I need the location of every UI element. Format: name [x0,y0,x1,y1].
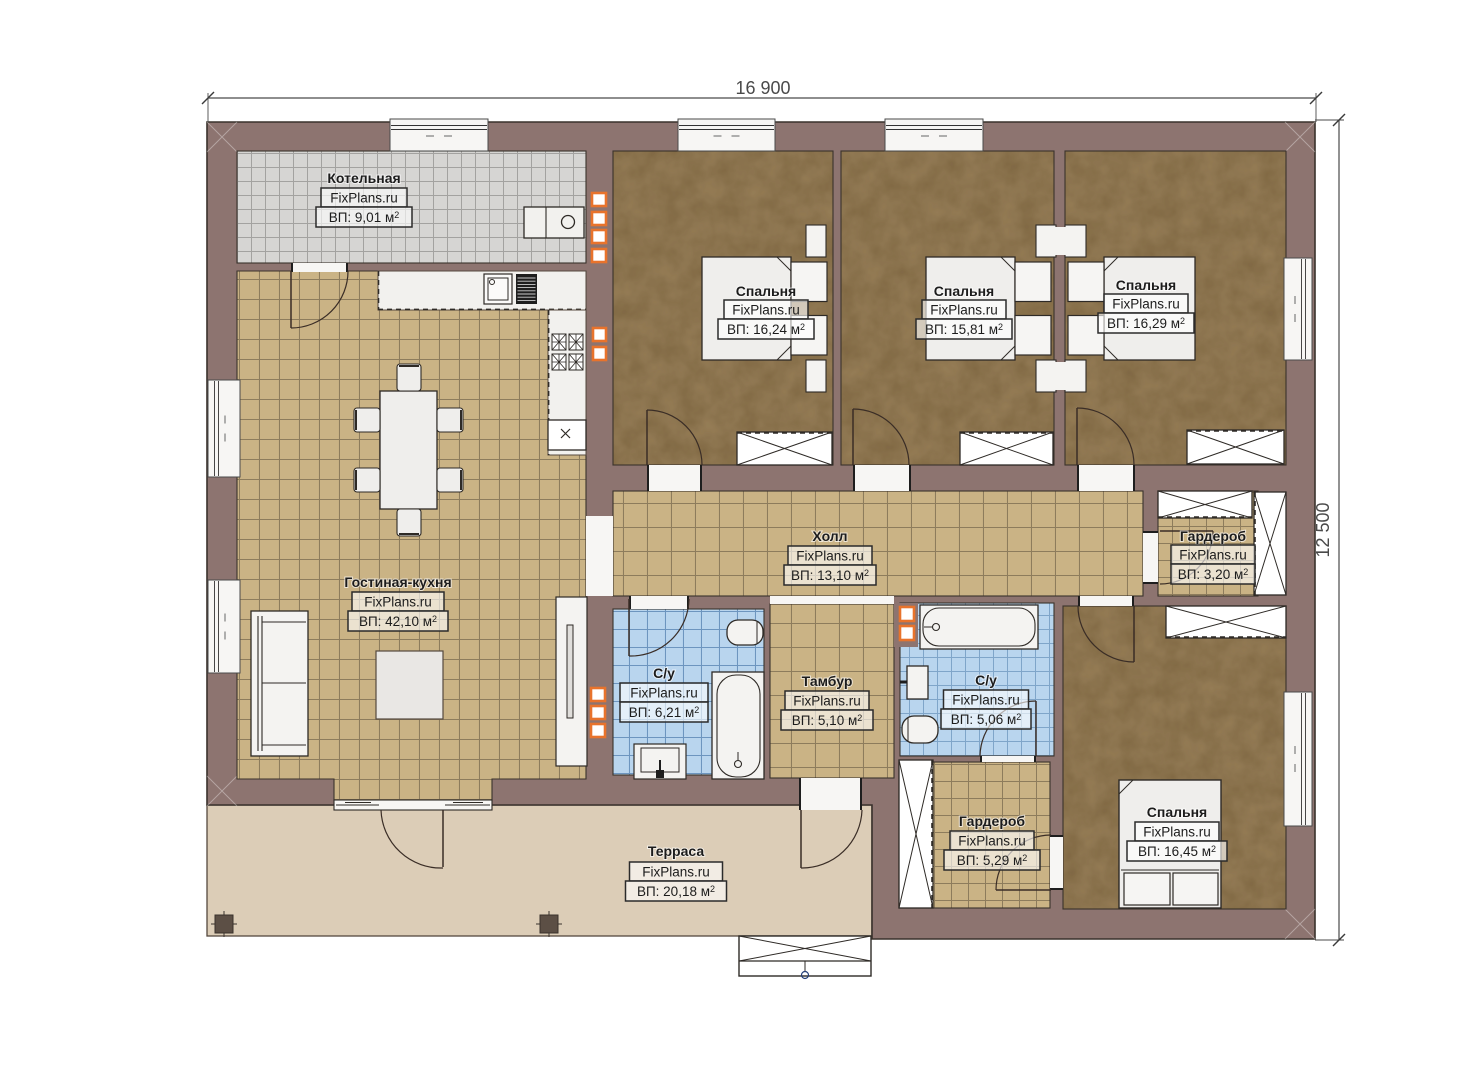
svg-text:С/у: С/у [653,665,675,681]
svg-text:Гостиная-кухня: Гостиная-кухня [344,574,451,590]
svg-text:ВП: 20,18 м2: ВП: 20,18 м2 [637,884,715,899]
svg-text:Котельная: Котельная [327,170,400,186]
svg-text:Тамбур: Тамбур [802,673,853,689]
svg-text:FixPlans.ru: FixPlans.ru [642,865,710,880]
svg-text:ВП: 5,10 м2: ВП: 5,10 м2 [792,713,863,728]
svg-text:С/у: С/у [975,672,997,688]
svg-text:ВП: 42,10 м2: ВП: 42,10 м2 [359,614,437,629]
svg-text:ВП: 16,45 м2: ВП: 16,45 м2 [1138,844,1216,859]
svg-text:Холл: Холл [812,528,847,544]
svg-text:FixPlans.ru: FixPlans.ru [958,834,1026,849]
svg-text:ВП: 15,81 м2: ВП: 15,81 м2 [925,322,1003,337]
svg-text:Гардероб: Гардероб [1180,528,1247,544]
svg-text:ВП: 5,06 м2: ВП: 5,06 м2 [951,712,1022,727]
svg-text:FixPlans.ru: FixPlans.ru [930,303,998,318]
svg-text:FixPlans.ru: FixPlans.ru [1179,548,1247,563]
svg-text:FixPlans.ru: FixPlans.ru [330,191,398,206]
svg-text:ВП: 5,29 м2: ВП: 5,29 м2 [957,853,1028,868]
svg-text:Спальня: Спальня [1116,277,1176,293]
svg-text:Спальня: Спальня [1147,804,1207,820]
svg-text:FixPlans.ru: FixPlans.ru [732,303,800,318]
svg-text:Терраса: Терраса [648,843,704,859]
svg-text:FixPlans.ru: FixPlans.ru [364,595,432,610]
svg-text:ВП: 6,21 м2: ВП: 6,21 м2 [629,705,700,720]
svg-text:16 900: 16 900 [735,78,790,98]
svg-text:Спальня: Спальня [736,283,796,299]
svg-text:ВП: 16,29 м2: ВП: 16,29 м2 [1107,316,1185,331]
svg-text:ВП: 3,20 м2: ВП: 3,20 м2 [1178,567,1249,582]
svg-text:ВП: 9,01 м2: ВП: 9,01 м2 [329,210,400,225]
svg-text:Спальня: Спальня [934,283,994,299]
svg-text:FixPlans.ru: FixPlans.ru [793,694,861,709]
svg-text:FixPlans.ru: FixPlans.ru [630,686,698,701]
svg-text:FixPlans.ru: FixPlans.ru [1112,297,1180,312]
svg-text:12 500: 12 500 [1313,502,1333,557]
svg-text:FixPlans.ru: FixPlans.ru [796,549,864,564]
svg-text:ВП: 13,10 м2: ВП: 13,10 м2 [791,568,869,583]
svg-text:FixPlans.ru: FixPlans.ru [952,693,1020,708]
svg-text:FixPlans.ru: FixPlans.ru [1143,825,1211,840]
svg-text:ВП: 16,24 м2: ВП: 16,24 м2 [727,322,805,337]
svg-text:Гардероб: Гардероб [959,813,1026,829]
